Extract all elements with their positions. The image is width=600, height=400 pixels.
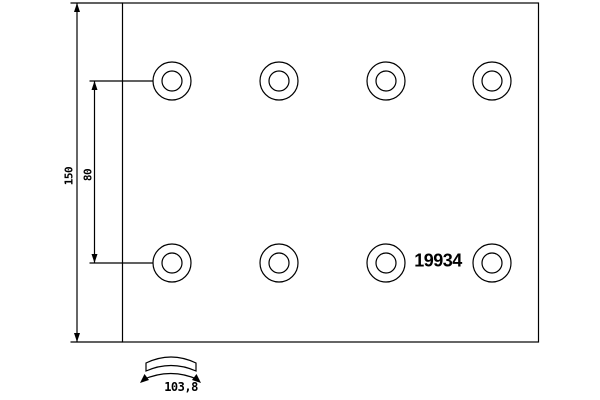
hole-outer — [260, 244, 298, 282]
hole-inner — [482, 253, 502, 273]
arrowhead-spacing-bottom — [92, 254, 98, 263]
hole-outer — [473, 62, 511, 100]
brake-lining-drawing — [0, 0, 600, 400]
hole-inner — [376, 71, 396, 91]
hole-outer — [153, 62, 191, 100]
dimension-label-arc-width: 103,8 — [164, 380, 198, 394]
dimension-label-height: 150 — [63, 167, 76, 185]
arrowhead-arc-left — [140, 374, 149, 383]
plate-outline — [123, 3, 539, 342]
hole-outer — [153, 244, 191, 282]
arrowhead-height-bottom — [74, 333, 80, 342]
part-number: 19934 — [414, 251, 462, 272]
hole-inner — [376, 253, 396, 273]
hole-outer — [367, 244, 405, 282]
hole-outer — [260, 62, 298, 100]
hole-inner — [269, 71, 289, 91]
hole-outer — [473, 244, 511, 282]
holes-group — [153, 62, 511, 282]
arrowhead-height-top — [74, 3, 80, 12]
technical-drawing-canvas: 150 80 103,8 19934 — [0, 0, 600, 400]
hole-inner — [162, 253, 182, 273]
arrowhead-spacing-top — [92, 81, 98, 90]
hole-inner — [162, 71, 182, 91]
cross-section-band — [146, 357, 196, 371]
hole-inner — [482, 71, 502, 91]
hole-outer — [367, 62, 405, 100]
hole-inner — [269, 253, 289, 273]
dimension-label-hole-spacing: 80 — [82, 169, 95, 181]
